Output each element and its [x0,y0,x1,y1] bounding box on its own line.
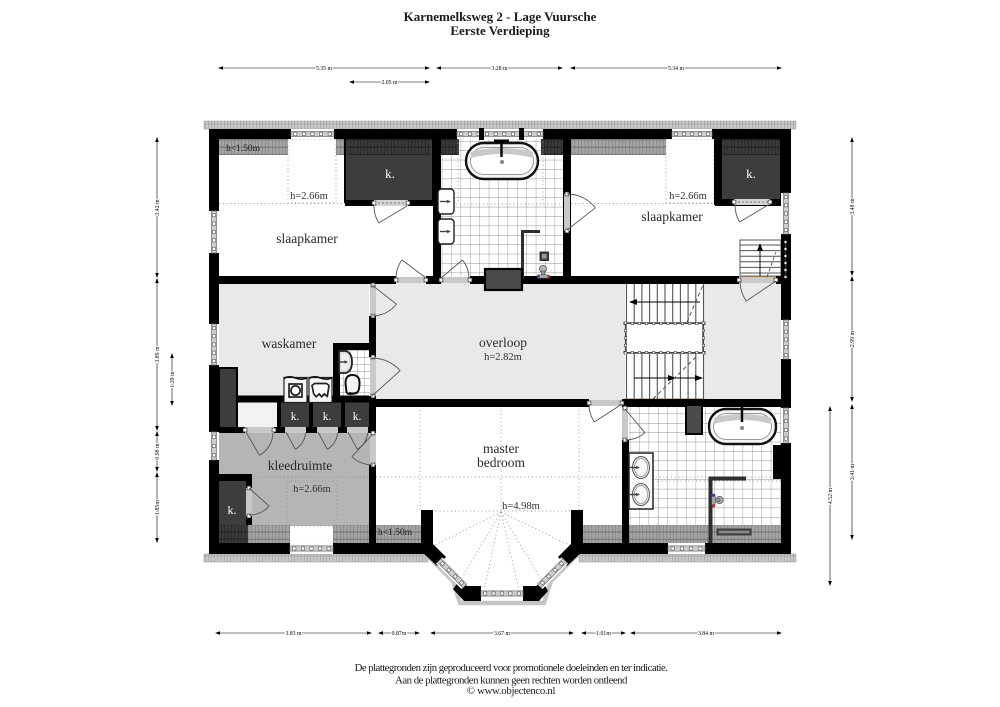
svg-text:3.42 m: 3.42 m [155,199,161,216]
svg-text:h<1.50m: h<1.50m [226,144,261,154]
svg-text:3.84 m: 3.84 m [698,631,715,637]
svg-text:overloop: overloop [479,335,527,350]
svg-text:2.99 m: 2.99 m [850,330,856,347]
svg-text:Karnemelksweg 2 - Lage Vuursch: Karnemelksweg 2 - Lage Vuursche [404,9,597,24]
svg-text:3.41 m: 3.41 m [850,463,856,480]
svg-text:5.34 m: 5.34 m [668,66,685,72]
svg-text:3.89 m: 3.89 m [155,346,161,363]
svg-text:k.: k. [746,166,756,181]
svg-text:© www.objectenco.nl: © www.objectenco.nl [467,685,556,697]
svg-text:3.67 m: 3.67 m [494,631,511,637]
svg-text:3.28 m: 3.28 m [491,66,508,72]
svg-text:slaapkamer: slaapkamer [276,231,338,246]
svg-text:h=2.66m: h=2.66m [293,484,331,495]
svg-text:3.48 m: 3.48 m [850,198,856,215]
svg-text:5.35 m: 5.35 m [316,66,333,72]
svg-text:k.: k. [385,166,395,181]
svg-text:3.83 m: 3.83 m [285,631,302,637]
svg-text:bedroom: bedroom [477,455,525,470]
svg-text:De plattegronden zijn geproduc: De plattegronden zijn geproduceerd voor … [355,662,668,674]
svg-text:0.87m: 0.87m [392,631,407,637]
svg-text:slaapkamer: slaapkamer [641,209,703,224]
svg-text:h=4.98m: h=4.98m [502,501,540,512]
svg-text:1.39 m: 1.39 m [170,371,176,388]
svg-text:h=2.66m: h=2.66m [290,191,328,202]
svg-text:k.: k. [228,503,237,517]
svg-text:h=2.66m: h=2.66m [669,191,707,202]
svg-text:2.05 m: 2.05 m [381,80,398,86]
svg-text:k.: k. [291,411,300,423]
svg-text:4.52 m: 4.52 m [828,487,834,504]
svg-text:k.: k. [323,411,332,423]
svg-text:k.: k. [353,411,362,423]
svg-text:waskamer: waskamer [262,336,317,351]
svg-text:kleedruimte: kleedruimte [268,458,332,473]
svg-text:0.98 m: 0.98 m [155,443,161,460]
svg-text:h=2.82m: h=2.82m [484,352,522,363]
svg-text:1.01m: 1.01m [596,631,611,637]
svg-text:1.85m: 1.85m [155,500,161,515]
svg-text:h<1.50m: h<1.50m [378,528,413,538]
svg-text:Eerste Verdieping: Eerste Verdieping [450,23,550,38]
svg-text:master: master [483,441,519,456]
